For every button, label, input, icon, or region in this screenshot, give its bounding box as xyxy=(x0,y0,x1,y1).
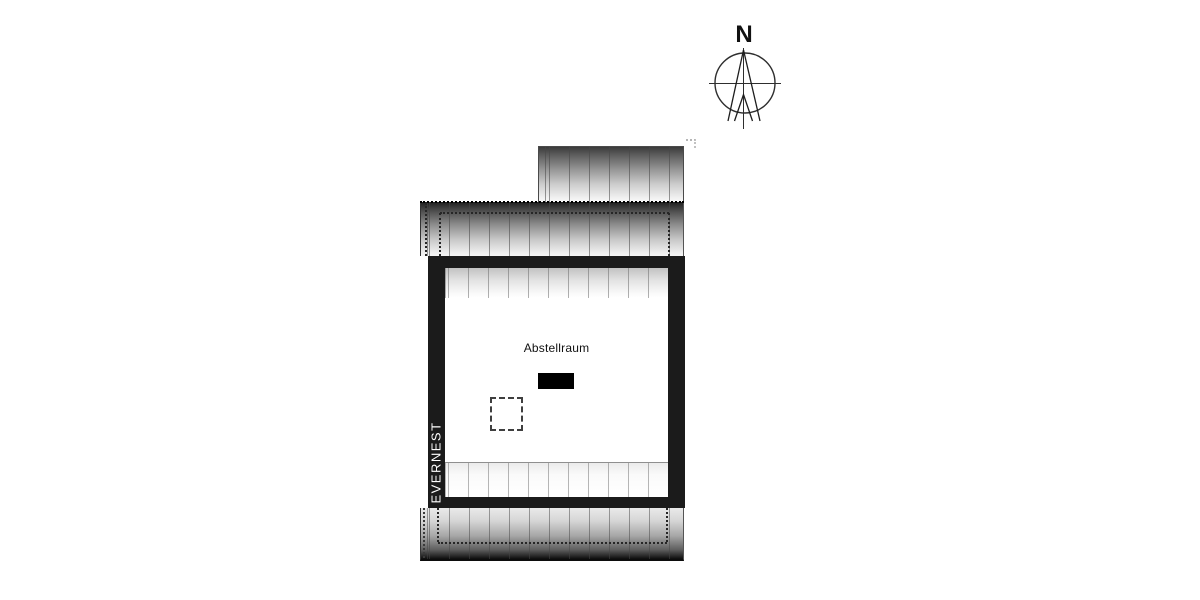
roof-surface-upper xyxy=(538,146,684,202)
brand-watermark-text: EVERNEST xyxy=(430,421,443,503)
corner-tick-mark xyxy=(686,139,696,148)
shaft-opening-dashed xyxy=(490,397,523,431)
roof-hidden-edge-left-outer xyxy=(425,203,427,256)
brand-watermark: EVERNEST xyxy=(428,418,445,506)
roof-hidden-edge-inner-bottom xyxy=(438,542,667,544)
roof-hidden-edge-bottom-inner-right xyxy=(666,508,668,542)
roof-hidden-edge-bottom-inner-left xyxy=(437,508,439,542)
roof-hidden-edge-bottom-left-outer xyxy=(423,508,425,558)
roof-surface-bottom xyxy=(420,508,684,561)
ceiling-slope-hatch-bottom xyxy=(445,462,668,497)
ceiling-slope-hatch-top xyxy=(445,268,668,298)
wall-bottom xyxy=(428,497,685,508)
chimney-block xyxy=(538,373,574,389)
floor-plan-canvas: N Abstellraum EVERNEST xyxy=(0,0,1200,600)
wall-right xyxy=(668,256,685,508)
wall-top xyxy=(428,256,685,268)
roof-hidden-edge-inner-right xyxy=(668,213,670,256)
roof-surface-top xyxy=(420,202,684,256)
roof-edge-dotted-top xyxy=(420,201,684,203)
room-label: Abstellraum xyxy=(445,341,668,355)
roof-hidden-edge-inner-top xyxy=(440,212,669,214)
roof-hidden-edge-inner-left xyxy=(439,213,441,256)
compass-rose-icon xyxy=(703,45,787,133)
compass-north-label: N xyxy=(727,23,761,47)
